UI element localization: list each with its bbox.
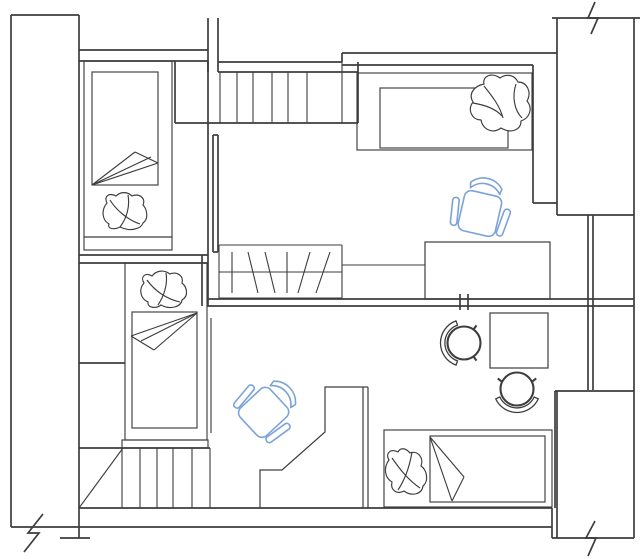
office-chair-lower-left (228, 366, 310, 448)
pillow-path (147, 280, 180, 302)
bed-line (92, 157, 151, 185)
round-chairs (440, 321, 538, 413)
hatched-wardrobe (219, 245, 425, 298)
bed-line (131, 336, 154, 350)
wall-line (588, 2, 598, 34)
round-chair (448, 327, 481, 360)
bed-line (430, 437, 464, 477)
beds (84, 61, 552, 507)
bed-line (384, 430, 552, 507)
pillow-path (158, 273, 167, 305)
bed-line (452, 477, 464, 501)
floor-plan (0, 0, 640, 559)
wall-line (586, 521, 596, 556)
wall-line (24, 514, 43, 552)
bed-line (122, 440, 208, 448)
desk-line (490, 313, 548, 368)
pillow-path (470, 75, 530, 131)
pillows (103, 75, 530, 494)
bed-line (430, 436, 545, 502)
office-chair-upper-right (446, 172, 517, 240)
bed-line (125, 263, 207, 440)
desk-line (425, 242, 550, 299)
bed-line (84, 61, 172, 250)
pillow-path (103, 193, 147, 230)
bed-line (131, 313, 197, 336)
pillow-path (110, 200, 140, 224)
bed-line (92, 152, 135, 185)
bed-line (430, 437, 452, 501)
stair-tread (79, 448, 123, 508)
staircase-lower (79, 448, 210, 508)
bed-line (92, 72, 158, 185)
round-chair (501, 373, 534, 406)
bed-line (135, 152, 158, 163)
pillow-path (398, 452, 412, 490)
floor-plan-page (0, 0, 640, 559)
chair-seat (457, 189, 503, 237)
bed-line (92, 163, 158, 185)
round-chair (440, 321, 457, 365)
pillow-path (120, 195, 129, 227)
pillow-path (385, 449, 426, 494)
